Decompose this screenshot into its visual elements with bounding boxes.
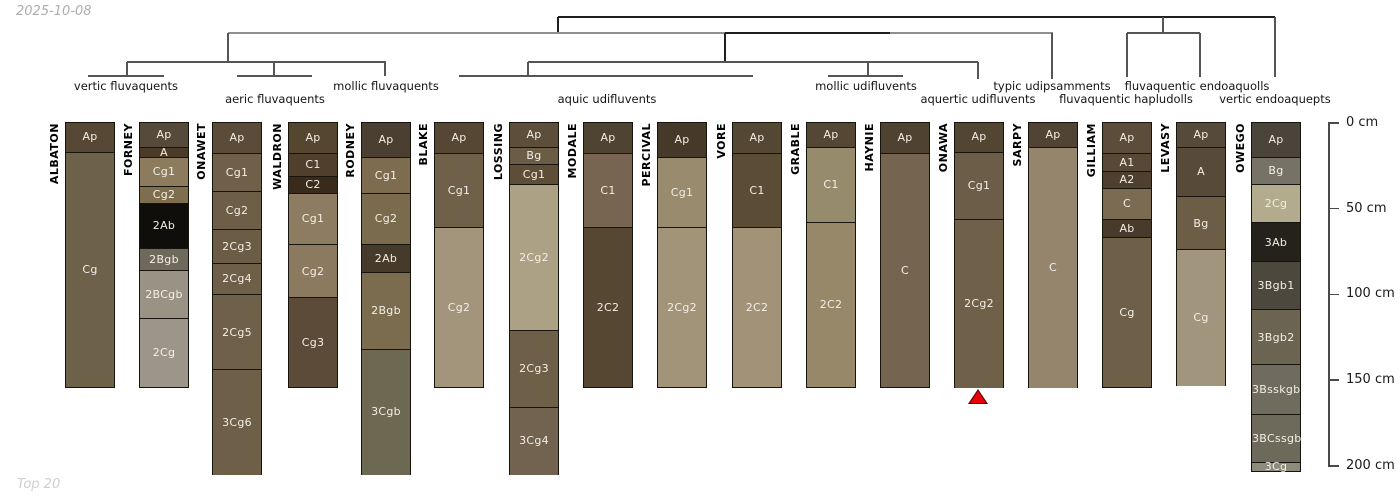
horizon-label: 2Cg2 — [658, 301, 706, 314]
dendrogram-segment — [528, 61, 978, 63]
horizon-label: 3Cg — [1252, 460, 1300, 473]
horizon-label: C1 — [733, 184, 781, 197]
horizon: Ap — [289, 123, 337, 154]
horizon-label: Cg1 — [362, 169, 410, 182]
dendrogram-segment — [557, 17, 559, 33]
horizon: Ap — [213, 123, 261, 154]
horizon: 3Cg6 — [213, 369, 261, 475]
dendrogram-segment — [527, 62, 529, 76]
profile-column: ApC — [880, 122, 930, 388]
horizon: 3Cgb — [362, 349, 410, 475]
horizon: 2C2 — [584, 227, 632, 387]
dendrogram-segment — [725, 32, 890, 34]
dendrogram-segment — [977, 62, 979, 79]
horizon-label: Ap — [1252, 133, 1300, 146]
horizon: C — [881, 153, 929, 387]
horizon-label: Cg1 — [140, 166, 188, 179]
horizon-label: Cg2 — [435, 301, 483, 314]
horizon-label: Ap — [807, 128, 855, 141]
horizon: 2BCgb — [140, 270, 188, 319]
profile-column: ApC12C2 — [806, 122, 856, 388]
group-label: mollic fluvaquents — [286, 79, 486, 93]
horizon: Cg1 — [658, 157, 706, 228]
horizon: Cg2 — [140, 186, 188, 204]
profile-name: ONAWET — [195, 123, 208, 180]
horizon: Ap — [1029, 123, 1077, 147]
dendrogram-segment — [126, 62, 128, 76]
depth-axis-tick-label: 50 cm — [1346, 201, 1387, 216]
horizon: C1 — [289, 153, 337, 176]
horizon: Ap — [807, 123, 855, 147]
horizon: 3Bgb1 — [1252, 261, 1300, 310]
horizon: Ap — [584, 123, 632, 154]
horizon-label: 2Cg — [1252, 197, 1300, 210]
horizon-label: Ap — [584, 131, 632, 144]
dendrogram-segment — [867, 62, 869, 76]
dendrogram-segment — [1162, 17, 1164, 33]
depth-axis-tick — [1328, 379, 1339, 381]
horizon-label: 3Bsskgb — [1252, 383, 1300, 396]
depth-axis-tick — [1328, 294, 1339, 296]
horizon-label: Cg — [1103, 306, 1151, 319]
profile-column: ApCg1Cg22Ab2Bgb3Cgb — [361, 122, 411, 475]
horizon: A1 — [1103, 153, 1151, 171]
dendrogram-segment — [1126, 33, 1128, 77]
horizon: 3BCssgb — [1252, 414, 1300, 463]
depth-axis-tick-label: 200 cm — [1346, 458, 1395, 473]
horizon-label: Ap — [140, 128, 188, 141]
dendrogram-segment — [227, 33, 229, 62]
horizon: 2Cg2 — [658, 227, 706, 387]
depth-axis-tick — [1328, 208, 1339, 210]
horizon: 2Bgb — [362, 272, 410, 350]
profile-name: GILLIAM — [1085, 123, 1098, 177]
horizon-label: Cg1 — [510, 168, 558, 181]
horizon: Cg2 — [213, 191, 261, 230]
horizon: 2Cg4 — [213, 263, 261, 295]
horizon-label: 2Cg5 — [213, 326, 261, 339]
profile-name: OWEGO — [1234, 123, 1247, 173]
profile-name: LEVASY — [1159, 123, 1172, 173]
dendrogram-segment — [558, 16, 1275, 18]
horizon: Cg1 — [510, 164, 558, 186]
horizon: Cg2 — [289, 244, 337, 298]
horizon: 2Bgb — [140, 248, 188, 271]
profile-name: RODNEY — [344, 123, 357, 178]
horizon-label: A1 — [1103, 156, 1151, 169]
horizon-label: A2 — [1103, 173, 1151, 186]
horizon-label: C1 — [289, 159, 337, 172]
horizon-label: Cg — [1177, 311, 1225, 324]
horizon: 2Cg — [1252, 184, 1300, 223]
dendrogram-segment — [273, 62, 275, 76]
depth-axis-tick — [1328, 122, 1339, 124]
horizon: Ap — [140, 123, 188, 147]
horizon-label: 2Cg3 — [213, 240, 261, 253]
profile-name: ALBATON — [48, 123, 61, 184]
group-label: fluvaquentic endoaquolls — [1097, 79, 1297, 93]
horizon: Cg — [1177, 249, 1225, 385]
horizon-label: Ap — [510, 128, 558, 141]
profile-column: ApC — [1028, 122, 1078, 388]
horizon-label: Cg1 — [435, 184, 483, 197]
horizon: Cg2 — [362, 193, 410, 245]
horizon-label: Ap — [66, 130, 114, 143]
horizon: Cg1 — [362, 157, 410, 194]
horizon-label: C1 — [807, 178, 855, 191]
profile-column: ApC12C2 — [583, 122, 633, 388]
horizon-label: 3Cg4 — [510, 435, 558, 448]
horizon: 2Cg3 — [510, 330, 558, 408]
horizon-label: 2C2 — [584, 301, 632, 314]
horizon-label: Ap — [213, 131, 261, 144]
dendrogram-segment — [88, 75, 164, 77]
profile-name: VORE — [715, 123, 728, 159]
horizon: Ap — [881, 123, 929, 154]
horizon: Cg1 — [213, 153, 261, 192]
plot-date: 2025-10-08 — [16, 4, 92, 19]
dendrogram-segment — [384, 62, 386, 76]
horizon-label: Ab — [1103, 222, 1151, 235]
horizon-label: Ap — [658, 133, 706, 146]
horizon-label: 2Cg2 — [955, 297, 1003, 310]
horizon: Cg1 — [435, 153, 483, 228]
horizon-label: C — [1103, 197, 1151, 210]
horizon: 3Cg4 — [510, 407, 558, 475]
depth-axis-tick-label: 0 cm — [1346, 115, 1378, 130]
group-label: mollic udifluvents — [766, 79, 966, 93]
profile-name: GRABLE — [789, 123, 802, 175]
horizon-label: 3Ab — [1252, 236, 1300, 249]
horizon-label: 3Bgb1 — [1252, 280, 1300, 293]
horizon-label: Bg — [1177, 217, 1225, 230]
horizon-label: 2Cg3 — [510, 363, 558, 376]
profile-name: HAYNIE — [863, 123, 876, 171]
horizon: Ap — [658, 123, 706, 157]
horizon-label: A — [1177, 166, 1225, 179]
horizon-label: Ap — [1029, 128, 1077, 141]
group-label: vertic endoaquepts — [1175, 92, 1375, 106]
horizon-label: Bg — [1252, 165, 1300, 178]
horizon: 3Cg — [1252, 462, 1300, 472]
horizon-label: C — [1029, 261, 1077, 274]
horizon: A — [1177, 147, 1225, 198]
profile-name: LOSSING — [492, 123, 505, 180]
horizon-label: C2 — [289, 178, 337, 191]
horizon-label: 2Bgb — [362, 304, 410, 317]
dendrogram-segment — [459, 75, 753, 77]
profile-column: ApC1C2Cg1Cg2Cg3 — [288, 122, 338, 388]
horizon: Ap — [435, 123, 483, 154]
horizon-label: 3Bgb2 — [1252, 331, 1300, 344]
horizon: Cg1 — [955, 152, 1003, 220]
horizon-label: Ap — [1103, 131, 1151, 144]
horizon-label: Bg — [510, 149, 558, 162]
horizon: 2Cg2 — [510, 184, 558, 331]
horizon-label: Cg3 — [289, 336, 337, 349]
profile-name: FORNEY — [122, 123, 135, 176]
horizon: 3Bsskgb — [1252, 364, 1300, 415]
horizon-label: 2Cg4 — [213, 273, 261, 286]
horizon: 2Cg2 — [955, 219, 1003, 388]
horizon: 2Cg3 — [213, 229, 261, 264]
horizon: Bg — [1177, 196, 1225, 250]
horizon-label: Cg1 — [955, 179, 1003, 192]
horizon-label: Ap — [881, 131, 929, 144]
horizon-label: 2Cg2 — [510, 251, 558, 264]
profile-column: ApCg12Cg2 — [657, 122, 707, 388]
horizon: Cg2 — [435, 227, 483, 387]
horizon: Ap — [955, 123, 1003, 152]
horizon-label: 3Cg6 — [213, 416, 261, 429]
horizon: C1 — [584, 153, 632, 228]
horizon: 2Cg5 — [213, 294, 261, 370]
horizon: 2C2 — [733, 227, 781, 387]
horizon: Ap — [733, 123, 781, 154]
group-label: aeric fluvaquents — [175, 92, 375, 106]
profile-column: ApBgCg12Cg22Cg33Cg4 — [509, 122, 559, 475]
profile-name: SARPY — [1011, 123, 1024, 166]
horizon: Cg1 — [140, 157, 188, 187]
horizon: Ap — [1252, 123, 1300, 157]
horizon-label: 2C2 — [807, 298, 855, 311]
horizon-label: C — [881, 264, 929, 277]
horizon: 2Cg — [140, 318, 188, 388]
profile-column: ApACg1Cg22Ab2Bgb2BCgb2Cg — [139, 122, 189, 388]
horizon-label: 2BCgb — [140, 288, 188, 301]
horizon-label: Ap — [955, 130, 1003, 143]
profile-name: BLAKE — [417, 123, 430, 165]
horizon-label: Ap — [733, 131, 781, 144]
horizon: Cg — [66, 152, 114, 388]
group-label: vertic fluvaquents — [26, 79, 226, 93]
profile-name: ONAWA — [937, 123, 950, 172]
horizon-label: Cg — [66, 263, 114, 276]
dendrogram-segment — [127, 61, 386, 63]
horizon-label: Cg2 — [140, 189, 188, 202]
profile-column: ApCg12Cg2 — [954, 122, 1004, 388]
horizon-label: 2Cg — [140, 346, 188, 359]
horizon-label: Cg1 — [289, 213, 337, 226]
profile-column: ApCg1Cg2 — [434, 122, 484, 388]
profile-column: ApABgCg — [1176, 122, 1226, 386]
depth-axis-tick-label: 150 cm — [1346, 372, 1395, 387]
horizon-label: Cg1 — [213, 166, 261, 179]
horizon-label: Ap — [362, 133, 410, 146]
horizon-label: Cg2 — [362, 213, 410, 226]
horizon: 3Bgb2 — [1252, 309, 1300, 365]
profile-column: ApA1A2CAbCg — [1102, 122, 1152, 388]
horizon: Ap — [1177, 123, 1225, 147]
horizon: Ap — [66, 123, 114, 152]
horizon-label: Cg2 — [213, 204, 261, 217]
profile-name: PERCIVAL — [640, 123, 653, 187]
horizon: Cg3 — [289, 297, 337, 387]
profile-column: ApBg2Cg3Ab3Bgb13Bgb23Bsskgb3BCssgb3Cg — [1251, 122, 1301, 472]
horizon-label: 2Ab — [362, 252, 410, 265]
soil-profile-dendrogram-figure: 2025-10-08 vertic fluvaquentsaeric fluva… — [0, 0, 1400, 500]
horizon: Cg1 — [289, 193, 337, 245]
horizon: 2Ab — [362, 244, 410, 272]
dendrogram-segment — [237, 75, 312, 77]
profile-name: WALDRON — [271, 123, 284, 190]
horizon: Ap — [362, 123, 410, 157]
horizon: Cg — [1103, 237, 1151, 387]
horizon: Ab — [1103, 219, 1151, 239]
dendrogram-segment — [228, 32, 1053, 34]
horizon-label: Ap — [435, 131, 483, 144]
horizon: C — [1029, 147, 1077, 388]
profile-column: ApCg1Cg22Cg32Cg42Cg53Cg6 — [212, 122, 262, 475]
dendrogram-segment — [1199, 33, 1201, 77]
horizon: Bg — [510, 147, 558, 165]
horizon-label: Ap — [289, 131, 337, 144]
profile-column: ApCg — [65, 122, 115, 388]
horizon: Ap — [1103, 123, 1151, 154]
depth-axis-tick-label: 100 cm — [1346, 286, 1395, 301]
dendrogram-segment — [724, 33, 726, 62]
horizon: C1 — [733, 153, 781, 228]
depth-axis-tick — [1328, 465, 1339, 467]
profile-column: ApC12C2 — [732, 122, 782, 388]
horizon-label: 3Cgb — [362, 406, 410, 419]
dendrogram-segment — [1051, 33, 1053, 79]
footer-note: Top 20 — [17, 477, 60, 492]
horizon-label: Cg2 — [289, 265, 337, 278]
dendrogram-segment — [828, 75, 903, 77]
profile-name: MODALE — [566, 123, 579, 178]
dendrogram-segment — [1127, 32, 1200, 34]
horizon: C — [1103, 188, 1151, 220]
horizon-label: 2Ab — [140, 220, 188, 233]
horizon: 3Ab — [1252, 222, 1300, 262]
dendrogram-segment — [1274, 17, 1276, 77]
horizon-label: 3BCssgb — [1252, 432, 1300, 445]
group-label: aquic udifluvents — [507, 92, 707, 106]
horizon: Bg — [1252, 157, 1300, 185]
horizon: Ap — [510, 123, 558, 147]
horizon-label: Ap — [1177, 128, 1225, 141]
horizon: 2Ab — [140, 203, 188, 249]
horizon: C1 — [807, 147, 855, 223]
horizon-label: C1 — [584, 184, 632, 197]
horizon: C2 — [289, 176, 337, 194]
horizon-label: 2Bgb — [140, 253, 188, 266]
horizon-label: Cg1 — [658, 186, 706, 199]
horizon: A2 — [1103, 171, 1151, 189]
horizon-label: 2C2 — [733, 301, 781, 314]
horizon: 2C2 — [807, 222, 855, 388]
